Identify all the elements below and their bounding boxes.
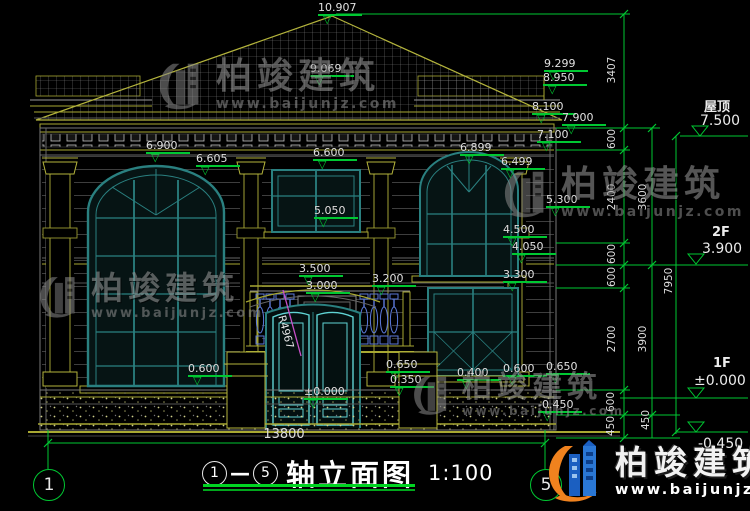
- title-axis-end-bubble: 5: [253, 461, 278, 486]
- width-dimension-value: 13800: [263, 427, 304, 442]
- elevation-line: [313, 159, 357, 161]
- elevation-line: [544, 70, 588, 72]
- floor-level-value: 3.900: [702, 241, 742, 257]
- dimension-chain-value: 450: [605, 416, 617, 436]
- elevation-line: [304, 398, 348, 400]
- elevation-value: 0.600: [503, 363, 535, 374]
- level-triangle-icon: ▽: [517, 255, 525, 263]
- elevation-value: 9.299: [544, 58, 576, 69]
- level-triangle-icon: ▽: [508, 238, 516, 246]
- elevation-marker: 9.069▽: [310, 63, 354, 85]
- watermark-brand: 柏竣建筑: [462, 372, 625, 404]
- elevation-value: 4.500: [503, 224, 535, 235]
- level-triangle-icon: ▽: [193, 377, 201, 385]
- level-triangle-icon: ▽: [315, 77, 323, 85]
- level-triangle-icon: ▽: [465, 156, 473, 164]
- brand-logo-icon: [543, 440, 609, 504]
- elevation-marker: 4.050▽: [512, 241, 556, 263]
- elevation-value: 8.950: [543, 72, 575, 83]
- watermark-logo-icon: [500, 166, 554, 220]
- dimension-chain-value: 3900: [637, 326, 649, 353]
- brand-url: www.baijunjz.com: [615, 482, 750, 498]
- watermark-brand: 柏竣建筑: [561, 166, 744, 204]
- watermark-url: www.baijunjz.com: [216, 96, 399, 112]
- title-underline: [203, 484, 415, 487]
- elevation-marker: 8.100▽: [532, 101, 576, 123]
- elevation-marker: 3.000▽: [306, 280, 350, 302]
- elevation-line: [537, 141, 581, 143]
- elevation-line: [532, 113, 576, 115]
- elevation-value: 5.050: [314, 205, 346, 216]
- elevation-marker: 9.299▽: [544, 58, 588, 80]
- level-triangle-icon: ▽: [323, 16, 331, 24]
- elevation-value: 0.400: [457, 367, 489, 378]
- elevation-value: 5.300: [546, 194, 578, 205]
- watermark-logo-icon: [410, 372, 455, 417]
- level-triangle-icon: ▽: [391, 373, 399, 381]
- elevation-marker: 6.605▽: [196, 153, 240, 175]
- elevation-line: [314, 217, 358, 219]
- floor-level-label: 1F: [713, 356, 731, 371]
- elevation-marker: 0.350▽: [390, 374, 434, 396]
- title-text: 轴立面图: [286, 452, 414, 494]
- elevation-line: [538, 411, 582, 413]
- watermark: 柏竣建筑www.baijunjz.com: [155, 58, 399, 112]
- elevation-value: 7.900: [562, 112, 594, 123]
- elevation-value: 3.000: [306, 280, 338, 291]
- elevation-value: 0.650: [546, 361, 578, 372]
- elevation-value: 0.650: [386, 359, 418, 370]
- elevation-line: [546, 373, 590, 375]
- dimension-chain-value: 600: [606, 244, 618, 264]
- level-triangle-icon: ▽: [304, 277, 312, 285]
- dimension-chain-value: 3600: [637, 184, 649, 211]
- elevation-value: 0.350: [390, 374, 422, 385]
- brand-name: 柏竣建筑: [615, 446, 750, 479]
- elevation-value: 6.899: [460, 142, 492, 153]
- watermark-logo-icon: [155, 58, 209, 112]
- elevation-marker: 8.950▽: [543, 72, 587, 94]
- elevation-marker: 6.600▽: [313, 147, 357, 169]
- level-triangle-icon: ▽: [551, 375, 559, 383]
- watermark-logo-icon: [36, 272, 84, 320]
- elevation-marker: 3.500▽: [299, 263, 343, 285]
- level-triangle-icon: ▽: [318, 161, 326, 169]
- elevation-line: [188, 375, 232, 377]
- elevation-line: [503, 375, 547, 377]
- elevation-value: 6.900: [146, 140, 178, 151]
- dimension-chain-value: 2400: [606, 184, 618, 211]
- floor-level-value: ±0.000: [694, 373, 746, 389]
- elevation-marker: 6.900▽: [146, 140, 190, 162]
- elevation-line: [196, 165, 240, 167]
- elevation-value: 4.050: [512, 241, 544, 252]
- elevation-marker: 7.900▽: [562, 112, 606, 134]
- elevation-line: [457, 379, 501, 381]
- elevation-line: [501, 168, 545, 170]
- elevation-value: 3.500: [299, 263, 331, 274]
- elevation-line: [372, 285, 416, 287]
- elevation-value: ±0.000: [304, 386, 345, 397]
- elevation-marker: -0.450▽: [538, 399, 582, 421]
- elevation-line: [390, 386, 434, 388]
- watermark-brand: 柏竣建筑: [216, 58, 399, 96]
- watermark-url: www.baijunjz.com: [462, 404, 625, 418]
- elevation-line: [386, 371, 430, 373]
- dimension-chain-value: 600: [606, 129, 618, 149]
- title-dash: —: [230, 461, 250, 485]
- level-triangle-icon: ▽: [201, 167, 209, 175]
- level-triangle-icon: ▽: [567, 126, 575, 134]
- level-triangle-icon: ▽: [395, 388, 403, 396]
- watermark: 柏竣建筑www.baijunjz.com: [36, 272, 264, 321]
- floor-level-label: 屋顶: [704, 96, 730, 115]
- axis-bubble: 1: [33, 469, 65, 501]
- dimension-chain-value: 7950: [663, 268, 675, 295]
- elevation-marker: 0.650▽: [386, 359, 430, 381]
- level-triangle-icon: ▽: [548, 86, 556, 94]
- elevation-value: 3.300: [503, 269, 535, 280]
- level-triangle-icon: ▽: [551, 208, 559, 216]
- title-scale: 1:100: [428, 461, 494, 485]
- level-triangle-icon: ▽: [309, 400, 317, 408]
- elevation-marker: 3.300▽: [503, 269, 547, 291]
- floor-level-value: 7.500: [700, 113, 740, 129]
- elevation-value: 10.907: [318, 2, 357, 13]
- level-triangle-icon: ▽: [508, 377, 516, 385]
- elevation-line: [512, 253, 556, 255]
- elevation-marker: 3.200▽: [372, 273, 416, 295]
- level-triangle-icon: ▽: [542, 143, 550, 151]
- elevation-value: 6.499: [501, 156, 533, 167]
- dimension-chain-value: 450: [640, 410, 652, 430]
- level-triangle-icon: ▽: [549, 72, 557, 80]
- dimension-chain-value: 2700: [606, 326, 618, 353]
- elevation-marker: ±0.000▽: [304, 386, 348, 408]
- elevation-value: -0.450: [538, 399, 573, 410]
- dimension-chain-value: 3407: [606, 57, 618, 84]
- watermark: 柏竣建筑www.baijunjz.com: [500, 166, 744, 220]
- level-triangle-icon: ▽: [151, 154, 159, 162]
- elevation-value: 7.100: [537, 129, 569, 140]
- dimension-chain-value: 600: [605, 392, 617, 412]
- level-triangle-icon: ▽: [508, 283, 516, 291]
- elevation-marker: 0.400▽: [457, 367, 501, 389]
- floor-level-label: 2F: [712, 225, 730, 240]
- elevation-marker: 7.100▽: [537, 129, 581, 151]
- watermark-brand: 柏竣建筑: [91, 272, 264, 306]
- annotation-overlay: 10.907▽9.069▽9.299▽8.950▽8.100▽7.900▽7.1…: [0, 0, 750, 511]
- cad-elevation-sheet: 10.907▽9.069▽9.299▽8.950▽8.100▽7.900▽7.1…: [0, 0, 750, 511]
- watermark-url: www.baijunjz.com: [561, 204, 744, 220]
- level-triangle-icon: ▽: [506, 170, 514, 178]
- elevation-marker: 0.600▽: [503, 363, 547, 385]
- elevation-line: [460, 154, 504, 156]
- elevation-value: 8.100: [532, 101, 564, 112]
- elevation-value: 6.600: [313, 147, 345, 158]
- elevation-marker: 0.650▽: [546, 361, 590, 383]
- elevation-value: 0.600: [188, 363, 220, 374]
- drawing-title: 1 — 5 轴立面图 1:100: [202, 452, 494, 494]
- watermark-url: www.baijunjz.com: [91, 306, 264, 321]
- level-triangle-icon: ▽: [311, 294, 319, 302]
- elevation-marker: 6.499▽: [501, 156, 545, 178]
- watermark: 柏竣建筑www.baijunjz.com: [410, 372, 625, 418]
- dimension-chain-value: 600: [606, 267, 618, 287]
- elevation-marker: 4.500▽: [503, 224, 547, 246]
- level-triangle-icon: ▽: [462, 381, 470, 389]
- level-triangle-icon: ▽: [543, 413, 551, 421]
- elevation-line: [318, 14, 362, 16]
- title-axis-start-bubble: 1: [202, 461, 227, 486]
- level-triangle-icon: ▽: [537, 115, 545, 123]
- elevation-marker: 6.899▽: [460, 142, 504, 164]
- elevation-value: 6.605: [196, 153, 228, 164]
- level-triangle-icon: ▽: [377, 287, 385, 295]
- elevation-line: [562, 124, 606, 126]
- level-triangle-icon: ▽: [319, 219, 327, 227]
- elevation-line: [543, 84, 587, 86]
- elevation-line: [503, 281, 547, 283]
- elevation-marker: 10.907▽: [318, 2, 362, 24]
- title-underline-2: [203, 489, 415, 491]
- elevation-marker: 5.050▽: [314, 205, 358, 227]
- elevation-line: [146, 152, 190, 154]
- elevation-value: 3.200: [372, 273, 404, 284]
- elevation-line: [310, 75, 354, 77]
- elevation-marker: 0.600▽: [188, 363, 232, 385]
- elevation-line: [299, 275, 343, 277]
- elevation-line: [546, 206, 590, 208]
- elevation-marker: 5.300▽: [546, 194, 590, 216]
- elevation-line: [306, 292, 350, 294]
- brand-logo: 柏竣建筑 www.baijunjz.com: [543, 440, 750, 504]
- elevation-line: [503, 236, 547, 238]
- elevation-value: 9.069: [310, 63, 342, 74]
